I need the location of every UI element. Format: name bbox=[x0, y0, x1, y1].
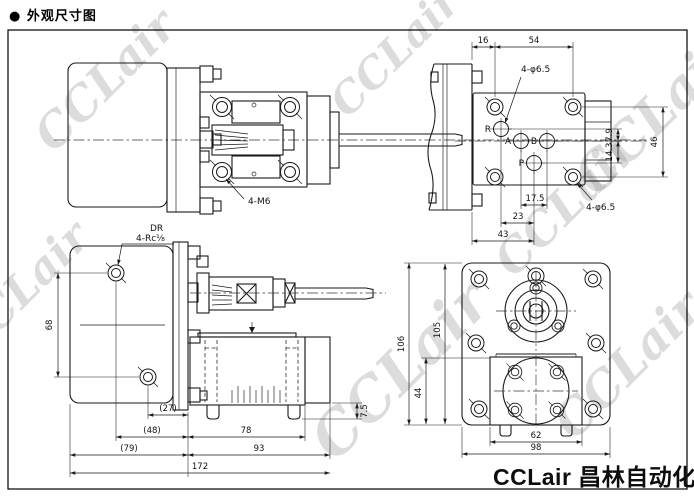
bolt-hole-icon bbox=[210, 160, 234, 184]
dim-62: 62 bbox=[531, 431, 542, 441]
bolt-hole-icon bbox=[278, 160, 302, 184]
view-front: 106 105 44 62 98 bbox=[397, 263, 610, 458]
pump-block-front bbox=[490, 354, 582, 436]
dim-left: 106 105 44 bbox=[397, 263, 490, 425]
view-side-top: 4-M6 bbox=[54, 63, 646, 214]
pump-block bbox=[190, 322, 330, 419]
dim-98: 98 bbox=[531, 443, 542, 453]
bolt-hole-icon bbox=[466, 333, 486, 353]
hole-callout-bottom: 4-φ6.5 bbox=[577, 183, 615, 213]
brand-logo-text: CCLair 昌林自动化 bbox=[493, 458, 694, 492]
bolt-hole-icon bbox=[469, 269, 489, 289]
drain-port-label: DR bbox=[150, 224, 163, 234]
dim-bottom: 17.5 23 43 bbox=[472, 137, 547, 245]
datasheet-page: ● 外观尺寸图 CCLair CCLair CCLair CCLair CCLa… bbox=[0, 0, 694, 496]
flange-bolt-icon bbox=[508, 320, 520, 332]
hidden-bolt-lines bbox=[205, 340, 298, 402]
hole-callout-top: 4-φ6.5 bbox=[505, 65, 550, 123]
coil-shading bbox=[212, 285, 232, 305]
port-B-hole bbox=[536, 130, 558, 152]
hatch-ticks bbox=[232, 386, 280, 403]
shaft-flange bbox=[496, 271, 576, 351]
dim-78: 78 bbox=[241, 426, 252, 436]
dim-106: 106 bbox=[397, 336, 407, 352]
bolt-hole-icon bbox=[583, 399, 603, 419]
dim-54: 54 bbox=[529, 36, 540, 46]
flange-plate bbox=[200, 92, 307, 187]
view-port-face: R A B P 16 54 4-φ6.5 bbox=[428, 36, 668, 245]
bolt-hole-icon bbox=[278, 95, 302, 119]
dim-79: (79) bbox=[120, 444, 137, 454]
bolt-hole-icon bbox=[469, 399, 489, 419]
drain-hole-icon bbox=[106, 263, 126, 283]
dim-93: 93 bbox=[254, 444, 265, 454]
bolt-hole-icon bbox=[563, 97, 583, 117]
valve-symbol-icon bbox=[237, 284, 256, 303]
dim-48: (48) bbox=[143, 426, 160, 436]
hole-label-bottom: 4-φ6.5 bbox=[586, 203, 615, 213]
bolt-hole-icon bbox=[583, 269, 603, 289]
bolt-hole-icon bbox=[210, 95, 234, 119]
motor-body-outline bbox=[68, 63, 200, 212]
flange-bolt-icon bbox=[552, 320, 564, 332]
drain-hole-icon bbox=[138, 367, 158, 387]
dim-105: 105 bbox=[433, 322, 443, 338]
dim-7-9: 7.9 bbox=[605, 128, 615, 142]
dim-bottom: 62 98 bbox=[462, 427, 610, 458]
port-R-label: R bbox=[485, 125, 491, 135]
port-B-label: B bbox=[531, 137, 537, 147]
dim-7-5: 7.5 bbox=[360, 404, 370, 418]
dim-43: 43 bbox=[498, 230, 509, 240]
hole-label-top: 4-φ6.5 bbox=[521, 65, 550, 75]
port-P-hole bbox=[523, 152, 545, 174]
stud bbox=[207, 405, 219, 419]
dim-bottom: (27) (48) 78 (79) 93 172 bbox=[70, 282, 330, 477]
stud bbox=[500, 425, 511, 436]
dimension-drawing: 4-M6 bbox=[0, 0, 694, 496]
drain-callout: DR 4-Rc⅛ bbox=[118, 224, 174, 265]
stud bbox=[288, 405, 300, 419]
solenoid-valve bbox=[188, 246, 386, 402]
stud bbox=[561, 425, 572, 436]
bolt-hole-icon bbox=[563, 167, 583, 187]
dim-23: 23 bbox=[513, 212, 524, 222]
bolt-hole-icon bbox=[485, 167, 505, 187]
mounting-wall bbox=[428, 64, 482, 210]
dim-27: (27) bbox=[159, 404, 176, 414]
dim-stud-height: 7.5 bbox=[302, 403, 370, 419]
dim-16: 16 bbox=[478, 36, 489, 46]
datum-arrow-icon bbox=[249, 327, 255, 333]
page-title: ● 外观尺寸图 bbox=[9, 5, 97, 24]
port-A-label: A bbox=[505, 137, 512, 147]
dim-172: 172 bbox=[192, 462, 208, 472]
view-side-bottom: DR 4-Rc⅛ bbox=[45, 224, 386, 477]
drain-thread-label: 4-Rc⅛ bbox=[136, 234, 165, 244]
dim-17-5: 17.5 bbox=[526, 194, 545, 204]
bolt-hole-icon bbox=[485, 97, 505, 117]
port-A-hole bbox=[510, 130, 532, 152]
dim-68: 68 bbox=[45, 320, 55, 331]
port-P-label: P bbox=[519, 159, 525, 169]
dim-46: 46 bbox=[650, 137, 660, 148]
bolt-hole-icon bbox=[586, 333, 606, 353]
dim-14-3: 14.3 bbox=[605, 143, 615, 162]
motor-body-outline bbox=[70, 242, 188, 410]
bolt-label: 4-M6 bbox=[248, 197, 271, 207]
dim-44: 44 bbox=[414, 388, 424, 399]
